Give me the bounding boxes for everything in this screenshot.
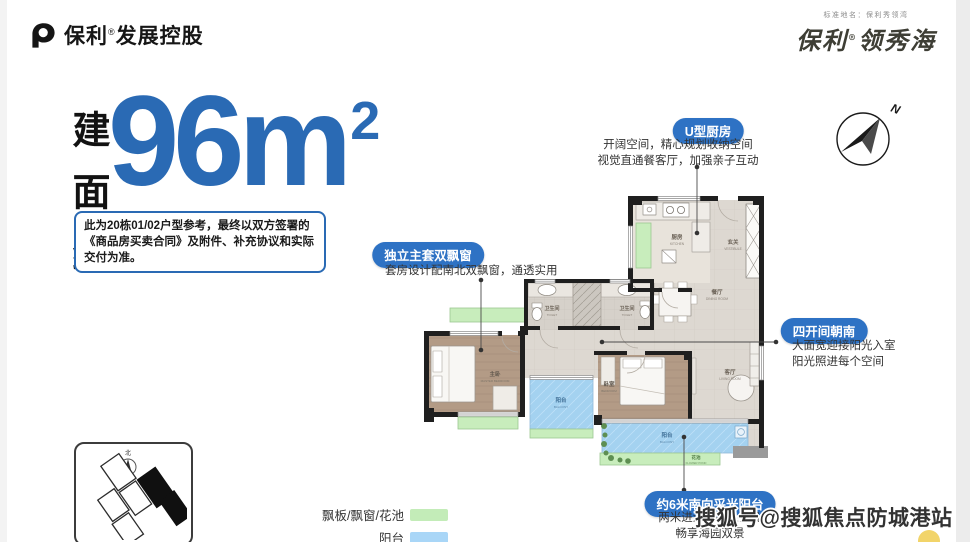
floorplan-drawing: 厨房 KITCHEN 玄关 VESTIBULE 餐厅 DINING ROOM 卫…	[415, 190, 810, 502]
left-edge-strip	[0, 0, 7, 542]
svg-text:DINING ROOM: DINING ROOM	[706, 297, 728, 301]
legend-swatch-green	[410, 509, 448, 521]
sitemap-box: 北	[74, 442, 193, 542]
room-label-living: 客厅	[723, 368, 736, 376]
room-label-master: 主卧	[489, 370, 501, 378]
legend-row-bay: 飘板/飘窗/花池	[300, 505, 448, 524]
sitemap-north-label: 北	[125, 449, 131, 457]
compass-icon: N	[827, 97, 909, 171]
room-label-dining: 餐厅	[710, 288, 723, 296]
callout-kitchen-desc: 开阔空间，精心规划收纳空间 视觉直通餐客厅，加强亲子互动	[598, 138, 759, 169]
developer-logo: 保利®发展控股	[30, 20, 204, 50]
room-label-flower-bed: 花池	[692, 454, 701, 461]
svg-text:FLOWER POND: FLOWER POND	[686, 461, 707, 465]
callout-south-desc: 大面宽迎接阳光入室 阳光照进每个空间	[792, 339, 896, 370]
room-label-balcony-north: 阳台	[555, 396, 567, 404]
svg-text:VESTIBULE: VESTIBULE	[724, 247, 742, 251]
callout-master-desc: 套房设计配南北双飘窗，通透实用	[385, 264, 558, 280]
room-label-bedroom2: 卧室	[603, 380, 615, 388]
project-brand: 标准地名：保利秀领湾 保利®领秀海	[796, 10, 936, 56]
svg-text:N: N	[889, 101, 903, 117]
room-label-balcony-south: 阳台	[661, 431, 673, 439]
svg-text:MASTER BEDROOM: MASTER BEDROOM	[481, 379, 510, 383]
room-label-toilet2: 卫生间	[619, 305, 634, 312]
legend-row-balcony: 阳台	[300, 528, 448, 542]
svg-text:LIVING ROOM: LIVING ROOM	[719, 377, 741, 381]
poly-logo-icon	[30, 22, 57, 49]
area-value: 96m2	[108, 78, 380, 206]
right-edge-strip	[956, 0, 970, 542]
flyer-page: 保利®发展控股 标准地名：保利秀领湾 保利®领秀海 建面约 96m2 此为20栋…	[0, 0, 970, 542]
sitemap-drawing: 北	[76, 444, 187, 540]
svg-text:TOILET: TOILET	[547, 313, 558, 317]
svg-text:TOILET: TOILET	[622, 313, 633, 317]
svg-text:KITCHEN: KITCHEN	[670, 242, 685, 246]
room-label-kitchen: 厨房	[671, 233, 683, 241]
legend-swatch-blue	[410, 532, 448, 542]
legend: 飘板/飘窗/花池 阳台	[300, 505, 448, 542]
developer-logo-text: 保利®发展控股	[64, 20, 204, 50]
standard-name-note: 标准地名：保利秀领湾	[796, 10, 936, 20]
disclaimer-box: 此为20栋01/02户型参考，最终以双方签署的《商品房买卖合同》及附件、补充协议…	[74, 211, 326, 273]
svg-text:BALCONY: BALCONY	[554, 405, 568, 409]
room-label-toilet1: 卫生间	[544, 305, 559, 312]
brand-calligraphy: 保利®领秀海	[796, 21, 936, 56]
svg-text:BALCONY: BALCONY	[660, 440, 674, 444]
watermark: 搜狐号@搜狐焦点防城港站	[695, 502, 952, 532]
svg-text:BEDROOM: BEDROOM	[601, 389, 617, 393]
room-label-vestibule: 玄关	[727, 238, 739, 246]
